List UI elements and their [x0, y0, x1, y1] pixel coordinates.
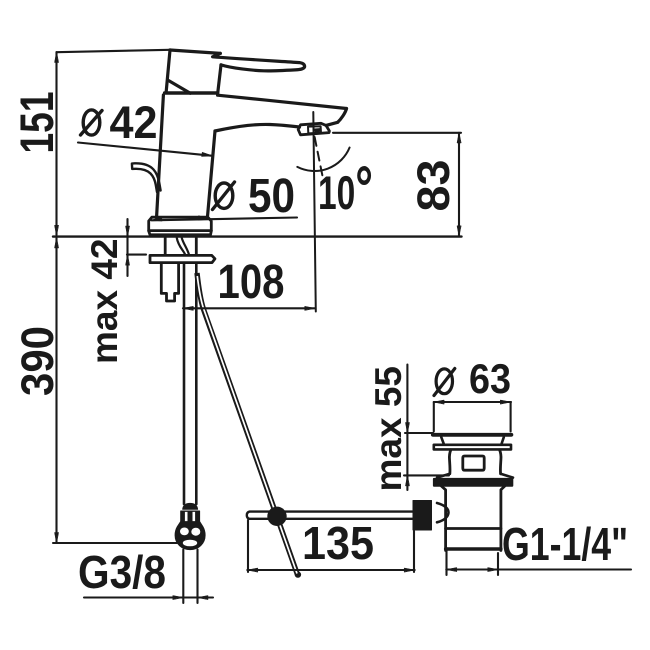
svg-text:83: 83 — [408, 160, 459, 212]
svg-text:G3/8: G3/8 — [78, 546, 166, 598]
svg-text:10°: 10° — [318, 154, 373, 223]
svg-text:151: 151 — [10, 92, 63, 154]
svg-text:135: 135 — [302, 517, 374, 569]
svg-text:max 42: max 42 — [84, 239, 125, 365]
svg-text:G1-1/4": G1-1/4" — [502, 518, 628, 570]
svg-text:max 55: max 55 — [368, 366, 409, 492]
svg-text:108: 108 — [218, 256, 285, 309]
svg-text:42: 42 — [110, 97, 158, 148]
svg-text:63: 63 — [469, 355, 511, 402]
svg-text:50: 50 — [248, 170, 295, 223]
svg-text:390: 390 — [12, 326, 63, 396]
